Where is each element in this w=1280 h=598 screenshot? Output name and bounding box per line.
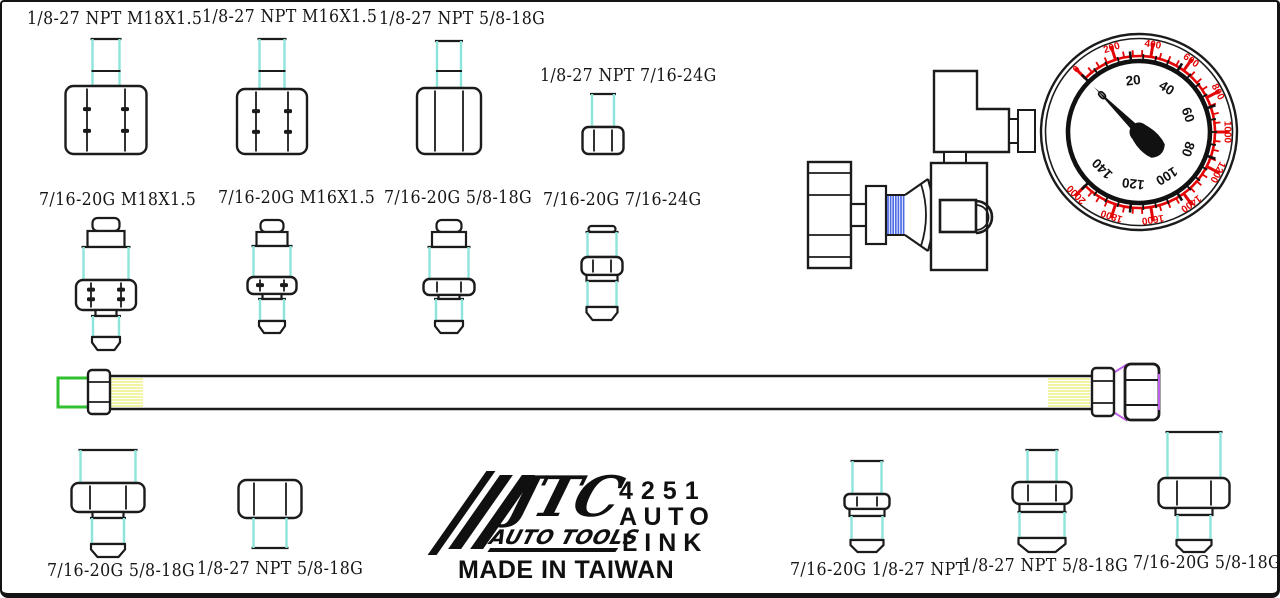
adapter-row2-3-drawing [424,220,475,333]
svg-text:20: 20 [1125,72,1142,89]
adapter-row1-1-label: 1/8-27 NPT M18X1.5 [27,8,202,29]
brand-logo-underline [488,548,618,552]
valve-collar [866,186,886,244]
hose-swivel-nut [1125,364,1159,420]
brand-logo-jtc: JTC [501,464,627,529]
adapter-br-2-drawing [1013,450,1072,552]
adapter-row1-3-drawing [417,41,481,154]
model-number: 4251 [619,477,707,506]
svg-text:1000: 1000 [1222,121,1233,144]
valve-gauge-assembly: 0200400600800100012001400160018002000020… [808,34,1237,270]
adapter-br-3-drawing [1159,432,1230,552]
adapter-row2-3-label: 7/16-20G 5/8-18G [384,187,532,208]
adapter-row2-1-drawing [76,218,136,350]
model-name-line1: AUTO [619,503,715,532]
hose-drawing [58,364,1159,420]
product-sheet: 0200400600800100012001400160018002000020… [0,0,1280,598]
adapter-row1-2-drawing [237,39,307,154]
adapter-row2-2-label: 7/16-20G M16X1.5 [218,187,375,208]
origin-text: MADE IN TAIWAN [458,556,674,585]
adapter-bottomleft-2-label: 1/8-27 NPT 5/8-18G [197,558,363,579]
adapter-bl-2-drawing [239,480,302,548]
hose-hatch-right [1048,379,1090,406]
adapter-row1-2-label: 1/8-27 NPT M16X1.5 [202,6,377,27]
model-name-line2: LINK [622,529,708,558]
hose-right-collar [1092,368,1114,416]
adapter-row2-4-drawing [582,226,623,320]
adapter-bottomright-3-label: 7/16-20G 5/8-18G [1133,552,1280,573]
gauge-connector-neck [1009,119,1018,143]
adapter-row2-2-drawing [248,220,297,333]
adapter-br-1-drawing [845,461,890,552]
adapter-row1-4-label: 1/8-27 NPT 7/16-24G [540,65,717,86]
gauge-connector [1018,110,1035,152]
adapter-row2-4-label: 7/16-20G 7/16-24G [543,189,701,210]
adapter-bottomright-1-label: 7/16-20G 1/8-27 NPT [790,559,967,580]
pressure-gauge: 0200400600800100012001400160018002000020… [1041,34,1237,230]
adapter-bl-1-drawing [72,450,145,557]
valve-port [940,200,976,232]
hose-hatch-left [110,379,143,406]
hose-end-fitting-green [58,378,90,407]
gauge-mount-block [934,71,1009,152]
hose-left-collar [88,370,110,414]
svg-text:120: 120 [1121,175,1145,192]
adapter-row1-4-drawing [583,94,624,154]
adapter-bottomright-2-label: 1/8-27 NPT 5/8-18G [962,555,1128,576]
adapter-row1-1-drawing [66,39,147,154]
valve-threads-blue [886,195,905,235]
valve-knob [808,162,851,268]
adapter-row1-3-label: 1/8-27 NPT 5/8-18G [379,8,545,29]
valve-knob-stem [851,204,867,226]
adapter-bottomleft-1-label: 7/16-20G 5/8-18G [47,560,195,581]
adapter-row2-1-label: 7/16-20G M18X1.5 [39,189,196,210]
